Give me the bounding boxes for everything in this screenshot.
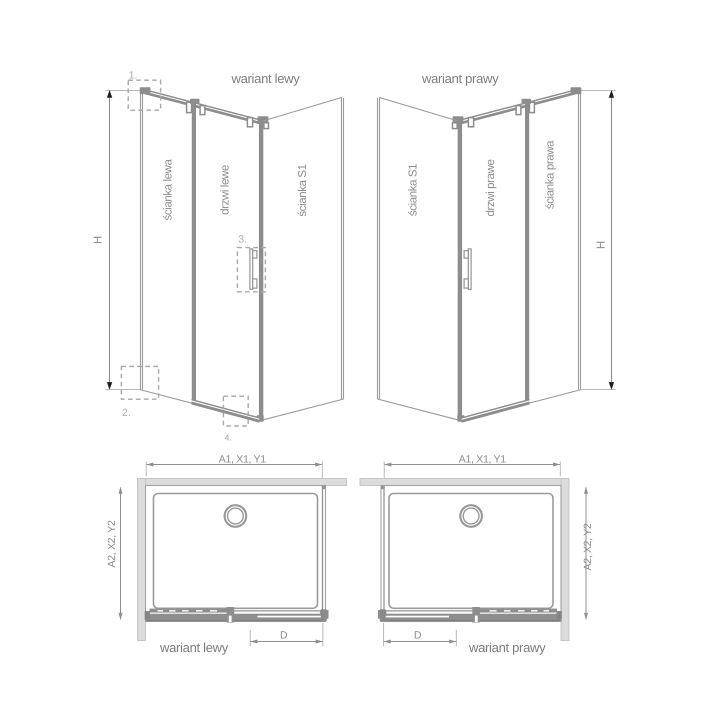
- svg-text:ścianka lewa: ścianka lewa: [163, 158, 175, 220]
- svg-text:wariant prawy: wariant prawy: [468, 640, 546, 655]
- svg-text:4.: 4.: [225, 432, 232, 442]
- svg-text:drzwi prawe: drzwi prawe: [485, 160, 497, 217]
- svg-text:D: D: [280, 629, 288, 641]
- svg-text:ścianka prawa: ścianka prawa: [545, 140, 557, 209]
- svg-text:A1, X1, Y1: A1, X1, Y1: [459, 454, 506, 466]
- svg-text:A2, X2, Y2: A2, X2, Y2: [106, 520, 118, 567]
- svg-text:wariant lewy: wariant lewy: [159, 640, 229, 655]
- svg-text:wariant lewy: wariant lewy: [231, 71, 301, 86]
- svg-text:D: D: [414, 629, 422, 641]
- svg-text:wariant prawy: wariant prawy: [421, 71, 499, 86]
- svg-text:2.: 2.: [122, 407, 131, 419]
- svg-text:A2, X2, Y2: A2, X2, Y2: [582, 523, 594, 570]
- svg-text:drzwi lewe: drzwi lewe: [220, 165, 232, 215]
- svg-text:H: H: [93, 236, 105, 244]
- svg-text:ścianka S1: ścianka S1: [297, 164, 309, 216]
- svg-text:3.: 3.: [238, 234, 247, 246]
- svg-text:H: H: [596, 241, 608, 249]
- svg-text:A1, X1, Y1: A1, X1, Y1: [219, 454, 266, 466]
- svg-text:1.: 1.: [129, 70, 138, 82]
- svg-text:ścianka S1: ścianka S1: [408, 164, 420, 216]
